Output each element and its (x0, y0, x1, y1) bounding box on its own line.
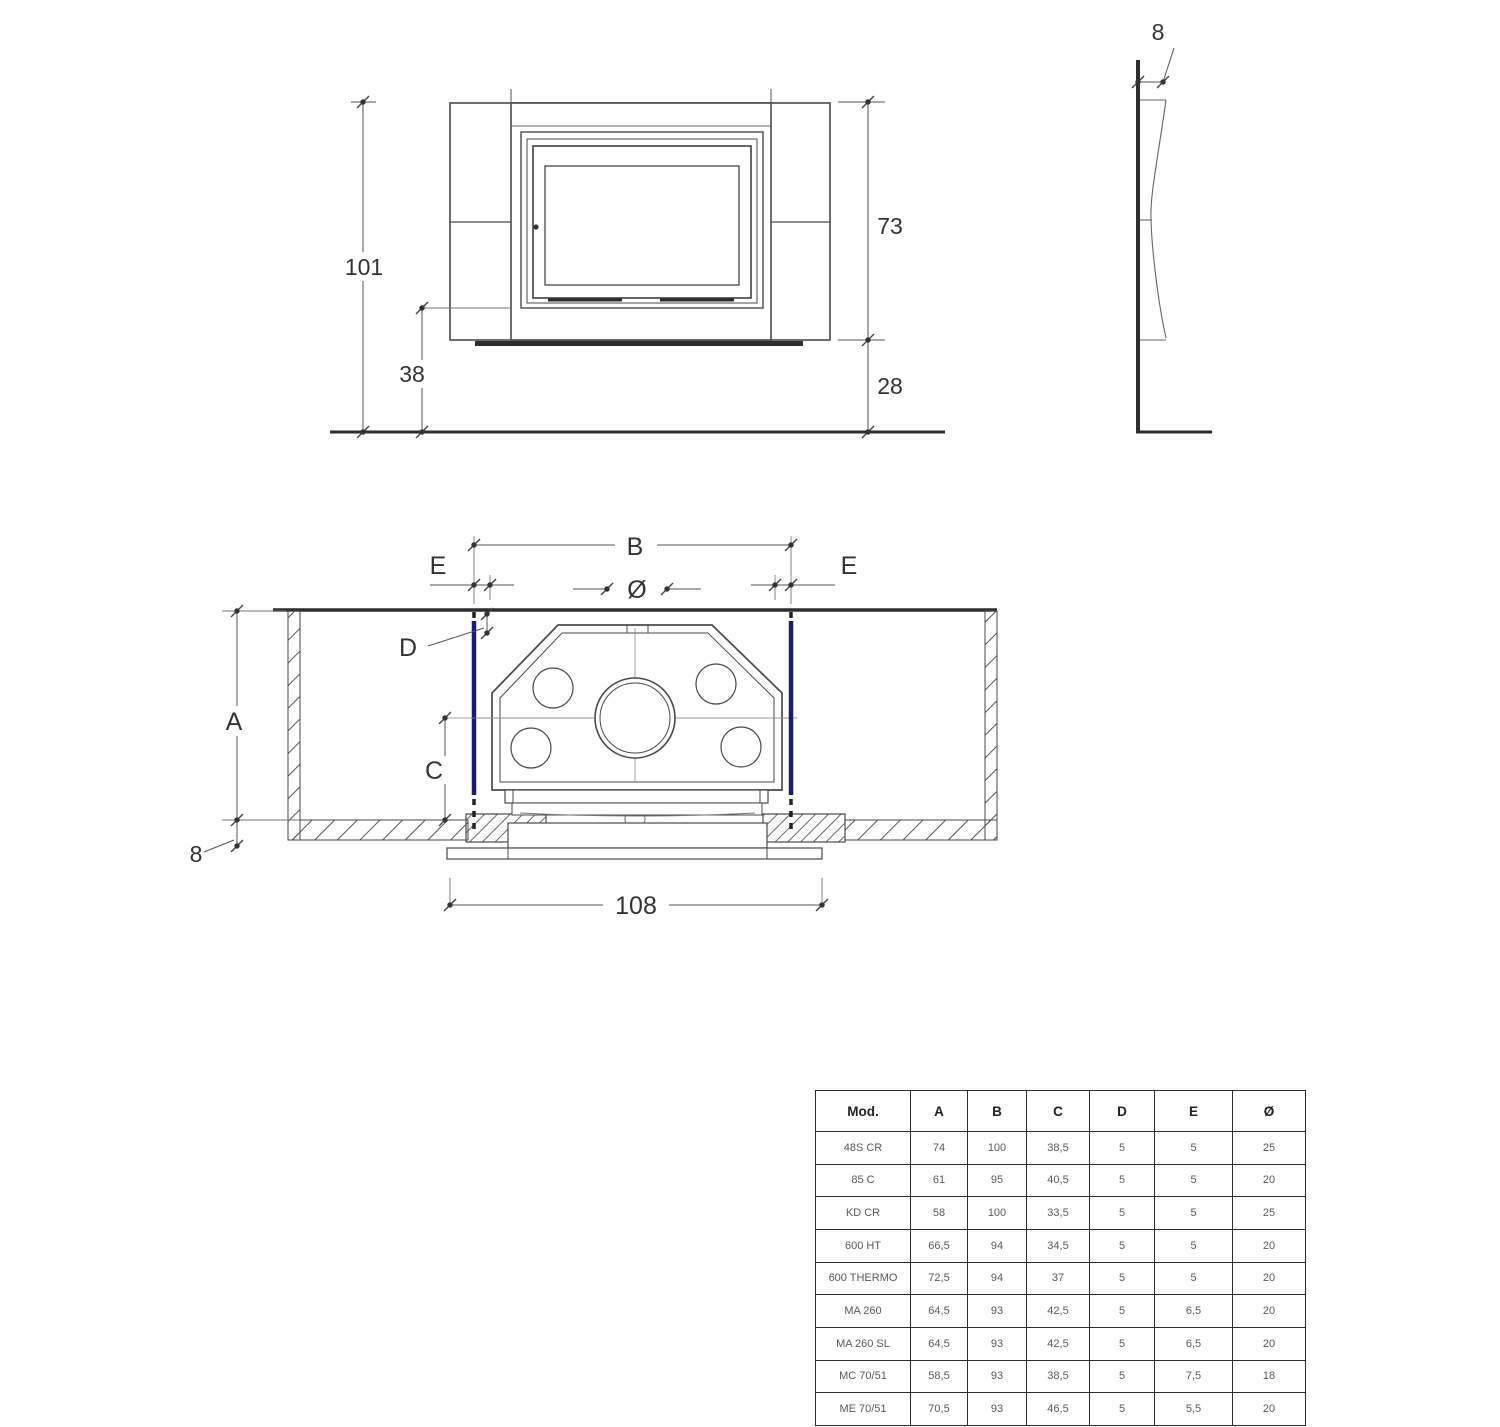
plan-wall-right (985, 611, 997, 840)
table-cell: 20 (1233, 1164, 1306, 1197)
table-cell: 5 (1155, 1197, 1233, 1230)
table-header-row: Mod. A B C D E Ø (816, 1091, 1306, 1132)
table-row: KD CR 58 100 33,5 5 5 25 (816, 1197, 1306, 1230)
table-cell: 93 (968, 1360, 1027, 1393)
anchor-foot-right (763, 814, 845, 842)
table-cell: 58,5 (911, 1360, 968, 1393)
table-cell: 5 (1090, 1197, 1155, 1230)
dim-edge-E-right: E (841, 552, 858, 580)
table-cell: 6,5 (1155, 1295, 1233, 1328)
dim-height-total: 101 (345, 254, 383, 280)
flue-outlet-outer (595, 678, 675, 758)
table-cell: 5 (1090, 1164, 1155, 1197)
dim-lower-height: 38 (399, 361, 425, 387)
dim-base-height: 28 (877, 373, 903, 399)
table-cell: 46,5 (1027, 1393, 1090, 1426)
table-cell: 20 (1233, 1393, 1306, 1426)
table-cell: 5 (1155, 1164, 1233, 1197)
table-cell: 25 (1233, 1132, 1306, 1165)
door-handle (533, 224, 538, 229)
table-cell: 93 (968, 1393, 1027, 1426)
model-name: 600 HT (816, 1229, 911, 1262)
table-cell: 5 (1155, 1262, 1233, 1295)
column-header-c: C (1027, 1091, 1090, 1132)
dim-span-B: B (627, 533, 644, 561)
spec-table: Mod. A B C D E Ø 48S CR 74 100 38,5 5 5 … (815, 1090, 1305, 1426)
table-row: 48S CR 74 100 38,5 5 5 25 (816, 1132, 1306, 1165)
table-row: MA 260 SL 64,5 93 42,5 5 6,5 20 (816, 1327, 1306, 1360)
column-header-mod: Mod. (816, 1091, 911, 1132)
plan-wall-bottom-left (288, 820, 468, 840)
table-cell: 61 (911, 1164, 968, 1197)
pedestal (508, 823, 767, 848)
table-cell: 7,5 (1155, 1360, 1233, 1393)
dim-niche-depth-A: A (226, 708, 243, 736)
plan-wall-bottom-right (845, 820, 997, 840)
dim-firebox-height: 73 (877, 213, 903, 239)
table-cell: 100 (968, 1132, 1027, 1165)
table-cell: 5 (1090, 1327, 1155, 1360)
table-cell: 5,5 (1155, 1393, 1233, 1426)
model-name: 48S CR (816, 1132, 911, 1165)
dim-wall-thickness: 8 (190, 841, 203, 867)
table-row: MC 70/51 58,5 93 38,5 5 7,5 18 (816, 1360, 1306, 1393)
hearth-base-strip (475, 341, 803, 346)
table-cell: 64,5 (911, 1327, 968, 1360)
table-cell: 38,5 (1027, 1360, 1090, 1393)
table-cell: 18 (1233, 1360, 1306, 1393)
table-cell: 95 (968, 1164, 1027, 1197)
table-cell: 38,5 (1027, 1132, 1090, 1165)
table-cell: 20 (1233, 1262, 1306, 1295)
plan-wall-left (288, 611, 300, 840)
table-cell: 5 (1090, 1132, 1155, 1165)
dim-edge-E-left: E (430, 552, 447, 580)
dim-panel-depth: 8 (1152, 19, 1165, 45)
dim-flue-diameter: Ø (627, 576, 646, 604)
table-cell: 5 (1090, 1393, 1155, 1426)
table-row: 600 THERMO 72,5 94 37 5 5 20 (816, 1262, 1306, 1295)
dim-center-depth-C: C (425, 757, 443, 785)
dim-wall-offset-D: D (399, 634, 417, 662)
table-cell: 6,5 (1155, 1327, 1233, 1360)
column-header-b: B (968, 1091, 1027, 1132)
table-cell: 5 (1090, 1295, 1155, 1328)
table-cell: 100 (968, 1197, 1027, 1230)
table-cell: 93 (968, 1327, 1027, 1360)
table-cell: 58 (911, 1197, 968, 1230)
table-cell: 5 (1090, 1229, 1155, 1262)
side-profile (1140, 100, 1166, 340)
table-cell: 33,5 (1027, 1197, 1090, 1230)
table-cell: 5 (1090, 1360, 1155, 1393)
side-view: 8 (1132, 19, 1212, 432)
table-cell: 20 (1233, 1327, 1306, 1360)
plan-view: B E E Ø D A C 8 108 (190, 530, 997, 920)
column-header-diameter: Ø (1233, 1091, 1306, 1132)
unit-front-band2 (512, 803, 762, 815)
table-cell: 42,5 (1027, 1327, 1090, 1360)
table-cell: 70,5 (911, 1393, 968, 1426)
model-name: MC 70/51 (816, 1360, 911, 1393)
table-cell: 64,5 (911, 1295, 968, 1328)
table-cell: 42,5 (1027, 1295, 1090, 1328)
table-row: 600 HT 66,5 94 34,5 5 5 20 (816, 1229, 1306, 1262)
table-cell: 72,5 (911, 1262, 968, 1295)
table-cell: 93 (968, 1295, 1027, 1328)
table-cell: 94 (968, 1229, 1027, 1262)
model-name: KD CR (816, 1197, 911, 1230)
column-header-a: A (911, 1091, 968, 1132)
table-cell: 20 (1233, 1229, 1306, 1262)
model-name: 85 C (816, 1164, 911, 1197)
model-name: MA 260 (816, 1295, 911, 1328)
dim-overall-width: 108 (615, 892, 657, 920)
table-row: ME 70/51 70,5 93 46,5 5 5,5 20 (816, 1393, 1306, 1426)
column-header-e: E (1155, 1091, 1233, 1132)
table-cell: 34,5 (1027, 1229, 1090, 1262)
table-cell: 5 (1155, 1229, 1233, 1262)
table-cell: 66,5 (911, 1229, 968, 1262)
table-cell: 74 (911, 1132, 968, 1165)
table-row: MA 260 64,5 93 42,5 5 6,5 20 (816, 1295, 1306, 1328)
model-name: MA 260 SL (816, 1327, 911, 1360)
table-cell: 25 (1233, 1197, 1306, 1230)
unit-front-band (505, 790, 768, 803)
table-cell: 5 (1090, 1262, 1155, 1295)
front-view: 101 38 73 28 (330, 89, 945, 438)
table-cell: 20 (1233, 1295, 1306, 1328)
model-name: 600 THERMO (816, 1262, 911, 1295)
column-header-d: D (1090, 1091, 1155, 1132)
table-cell: 5 (1155, 1132, 1233, 1165)
table-row: 85 C 61 95 40,5 5 5 20 (816, 1164, 1306, 1197)
table-cell: 94 (968, 1262, 1027, 1295)
base-plate (447, 848, 822, 859)
table-cell: 37 (1027, 1262, 1090, 1295)
table-cell: 40,5 (1027, 1164, 1090, 1197)
model-name: ME 70/51 (816, 1393, 911, 1426)
